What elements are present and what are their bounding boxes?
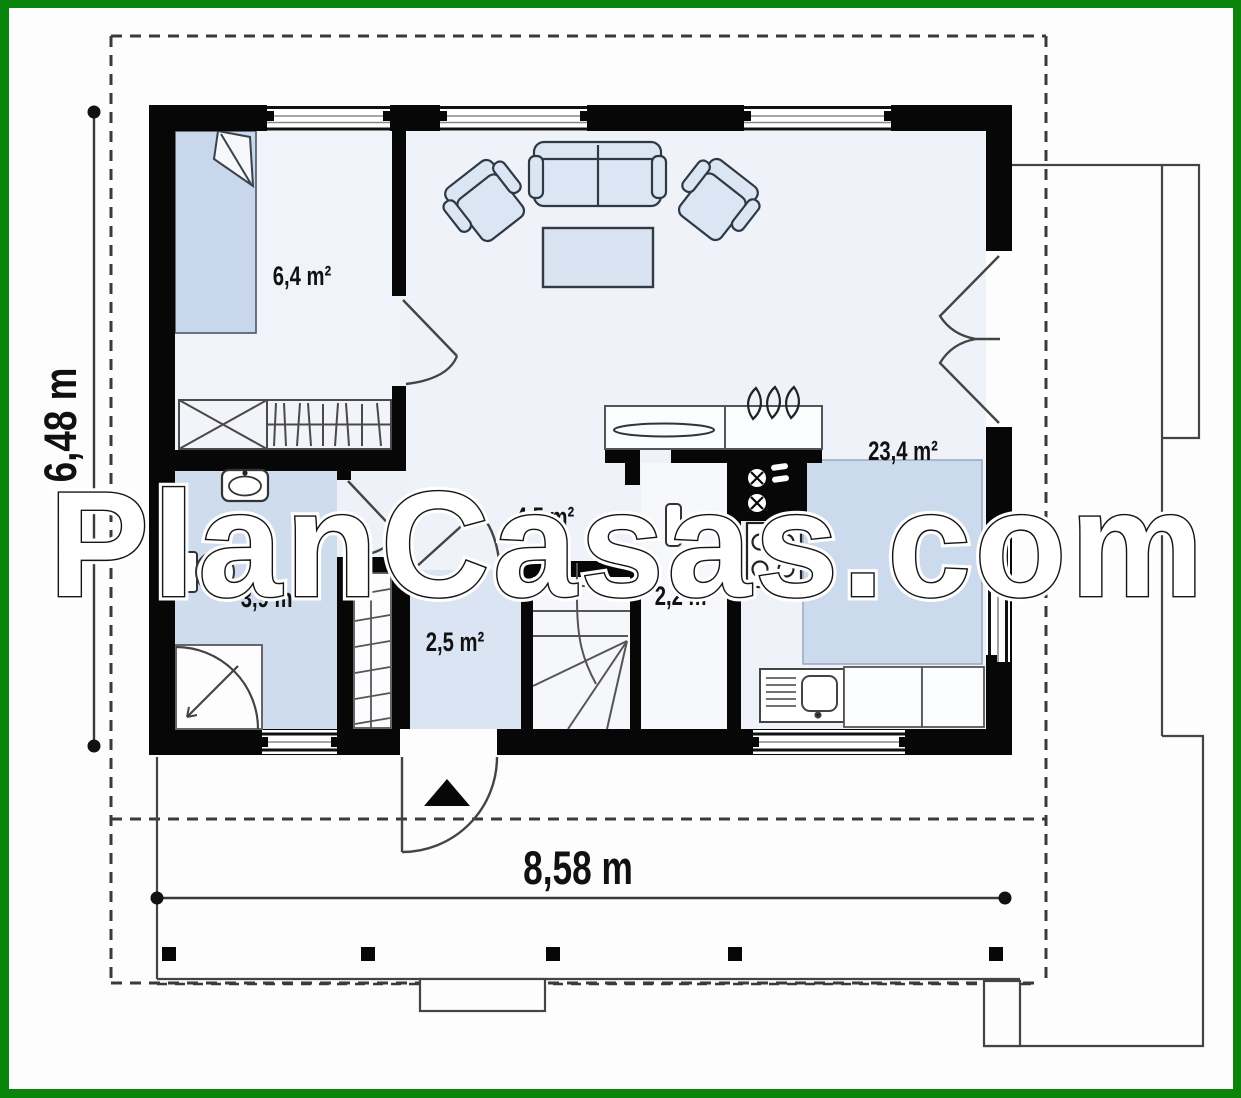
svg-text:PlanCasas.com: PlanCasas.com (49, 460, 1207, 628)
svg-text:8,58 m: 8,58 m (523, 841, 633, 894)
svg-text:6,4 m²: 6,4 m² (273, 261, 332, 292)
svg-text:2,5 m²: 2,5 m² (426, 627, 485, 658)
